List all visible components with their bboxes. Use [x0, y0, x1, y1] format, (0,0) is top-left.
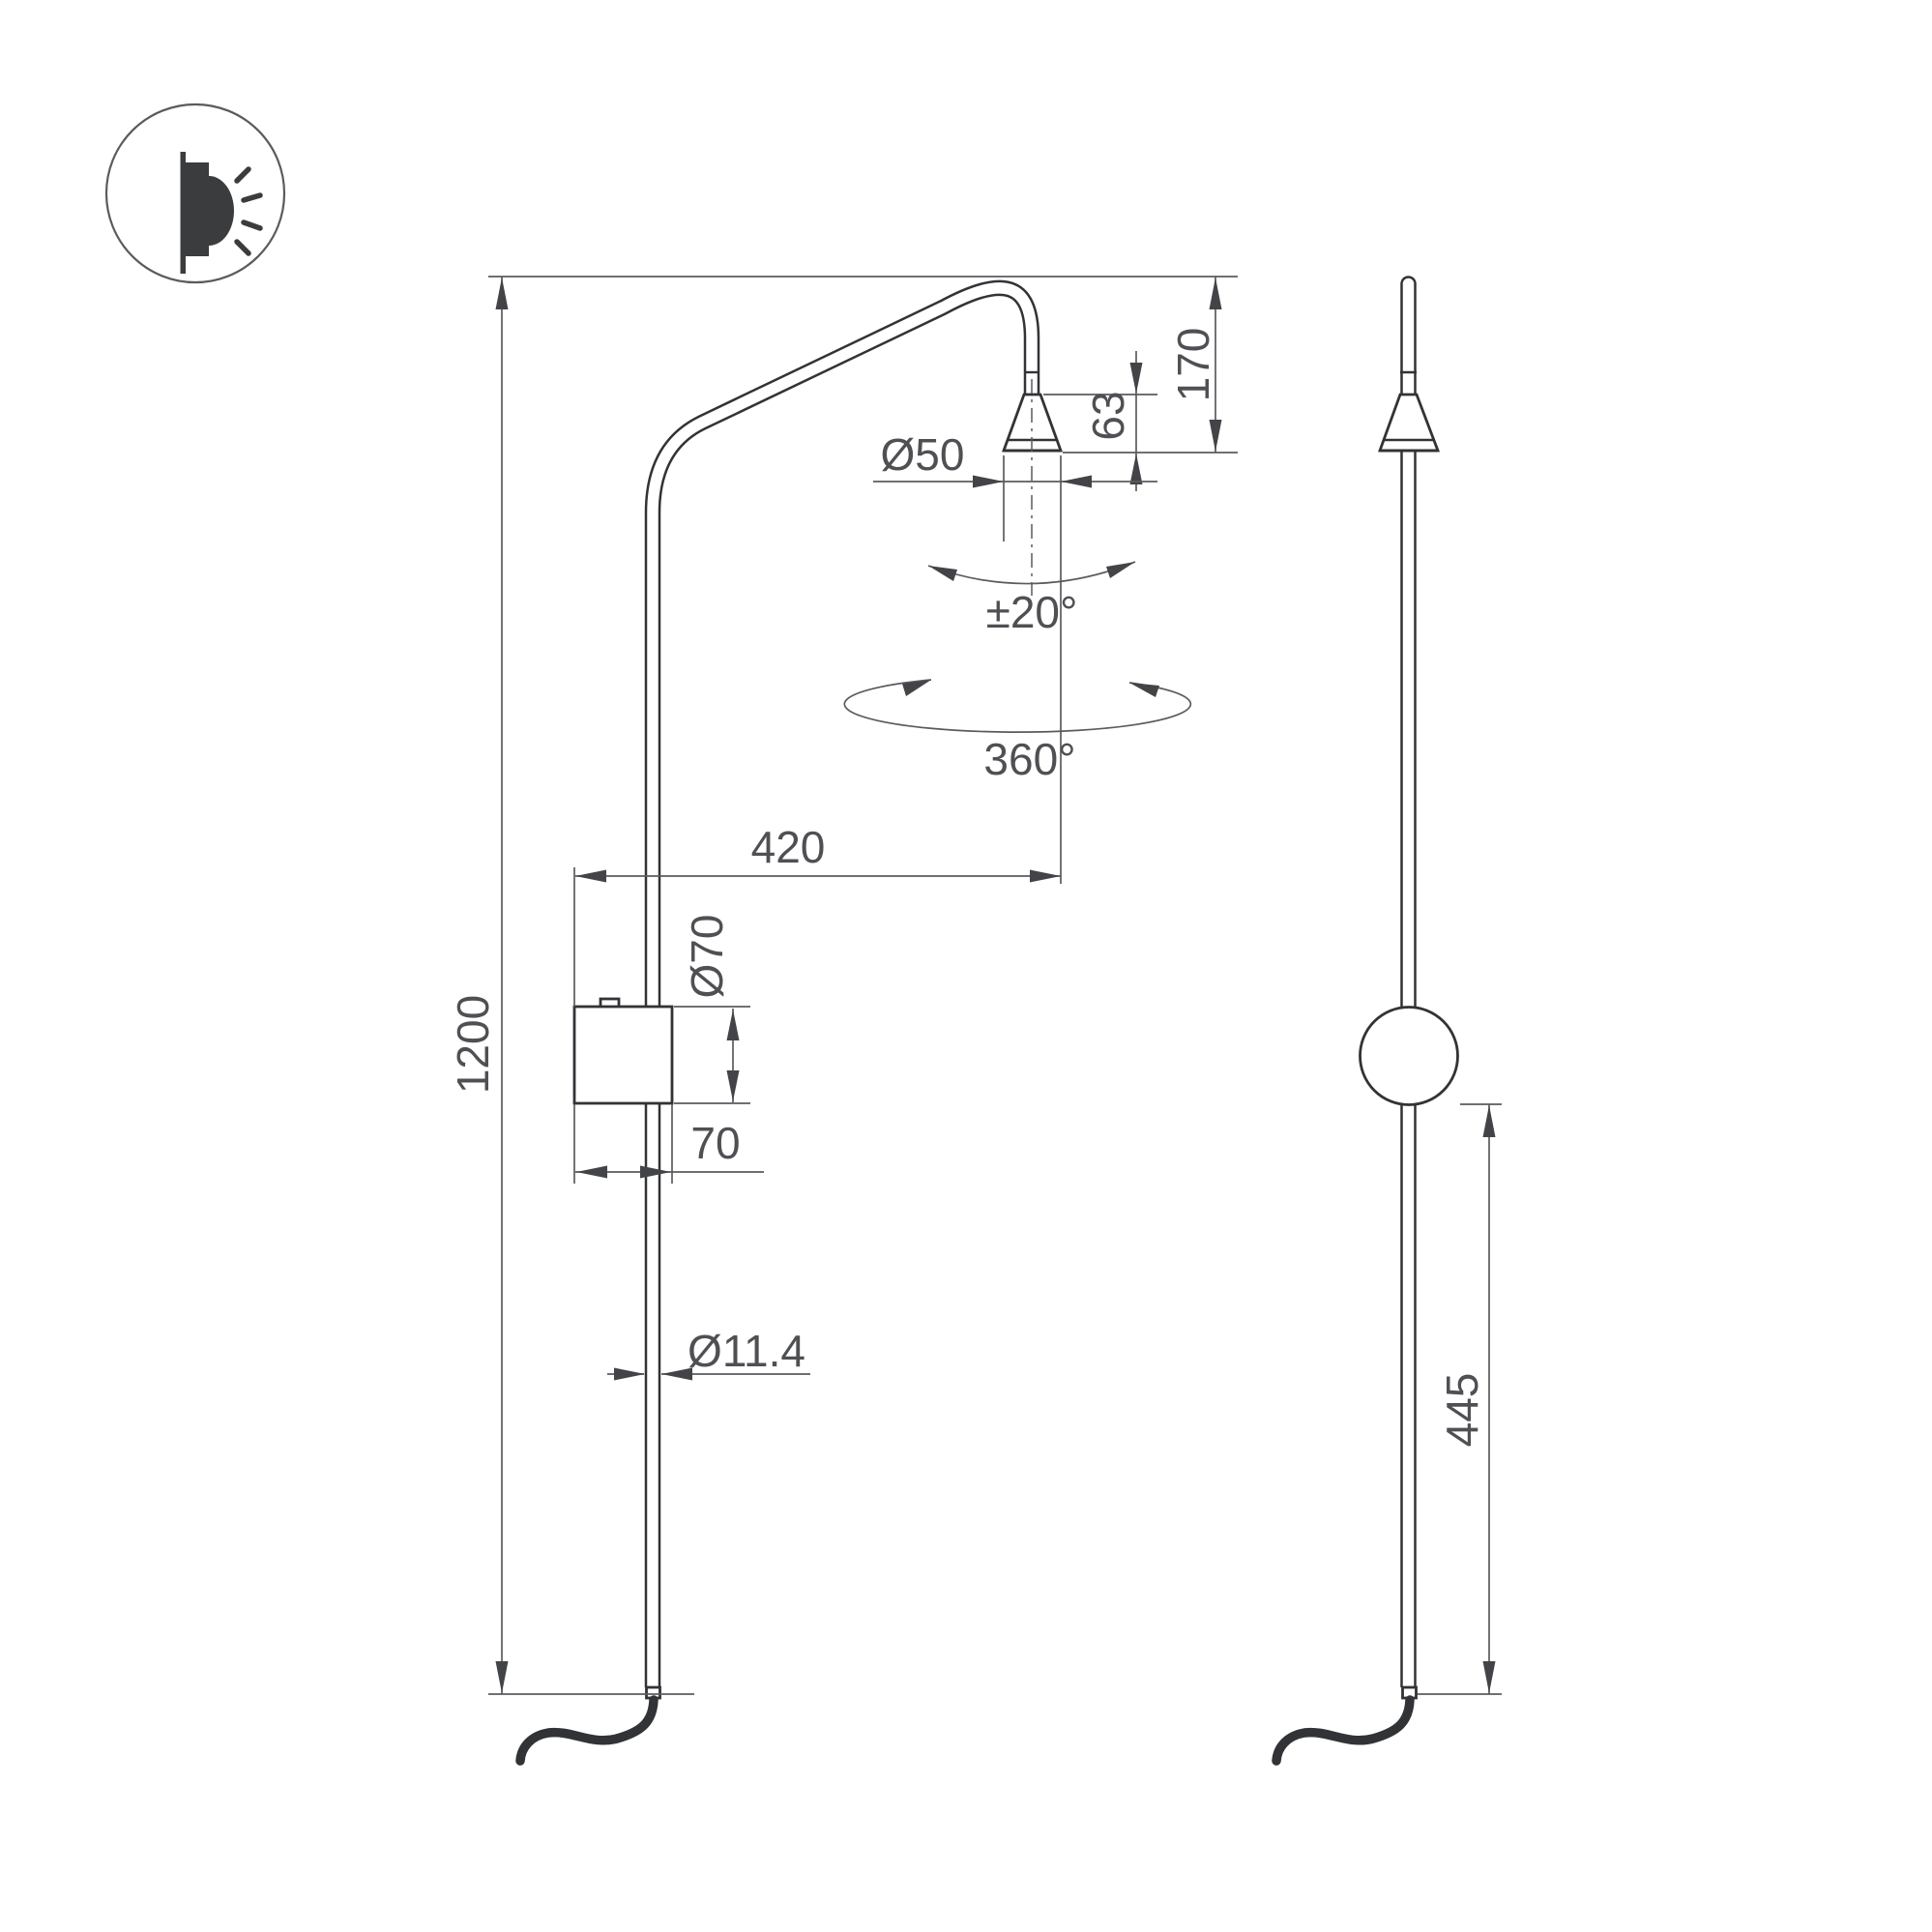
dim-head-offset: 170 [1168, 277, 1222, 453]
dim-rotation: 360° [844, 680, 1190, 784]
side-power-cable [1276, 1700, 1410, 1761]
dim-label-d50: Ø50 [881, 429, 965, 480]
side-driver-box-circle [1361, 1008, 1458, 1105]
dim-label-1200: 1200 [448, 995, 498, 1094]
dim-overall-height: 1200 [448, 277, 509, 1694]
dim-label-70: 70 [690, 1118, 740, 1168]
dim-label-rotation: 360° [983, 734, 1075, 784]
dim-label-tilt: ±20° [986, 587, 1078, 637]
wall-lamp-glow-icon [106, 104, 284, 282]
icon-ray-4 [237, 242, 249, 253]
front-power-cable [520, 1700, 654, 1761]
icon-light-dome [209, 176, 234, 246]
dim-tilt-range: ±20° [928, 562, 1135, 637]
wall-lamp-dimension-drawing: 1200 170 63 Ø50 ± [0, 0, 1932, 1932]
dim-box-to-bottom: 445 [1437, 1104, 1496, 1694]
front-view [520, 288, 1061, 1761]
dim-label-63: 63 [1083, 391, 1133, 440]
dimensions: 1200 170 63 Ø50 ± [448, 277, 1502, 1694]
icon-lamp-body [185, 162, 209, 256]
dim-label-d114: Ø11.4 [688, 1326, 805, 1376]
icon-ray-3 [244, 222, 260, 228]
dim-label-d70: Ø70 [682, 915, 732, 999]
dim-cone-height: 63 [1083, 351, 1143, 491]
dim-box-diameter: Ø70 [682, 915, 740, 1102]
front-driver-box [574, 1007, 672, 1103]
dim-label-420: 420 [751, 822, 826, 872]
dim-label-170: 170 [1168, 328, 1218, 402]
dim-tube-diameter: Ø11.4 [607, 1326, 810, 1381]
icon-ray-1 [237, 169, 249, 181]
dim-label-445: 445 [1437, 1373, 1487, 1448]
side-view [1276, 284, 1458, 1762]
icon-ray-2 [244, 195, 260, 200]
technical-drawing-page: 1200 170 63 Ø50 ± [0, 0, 1932, 1932]
side-head-cone [1380, 395, 1438, 451]
dim-box-width: 70 [575, 1118, 764, 1179]
